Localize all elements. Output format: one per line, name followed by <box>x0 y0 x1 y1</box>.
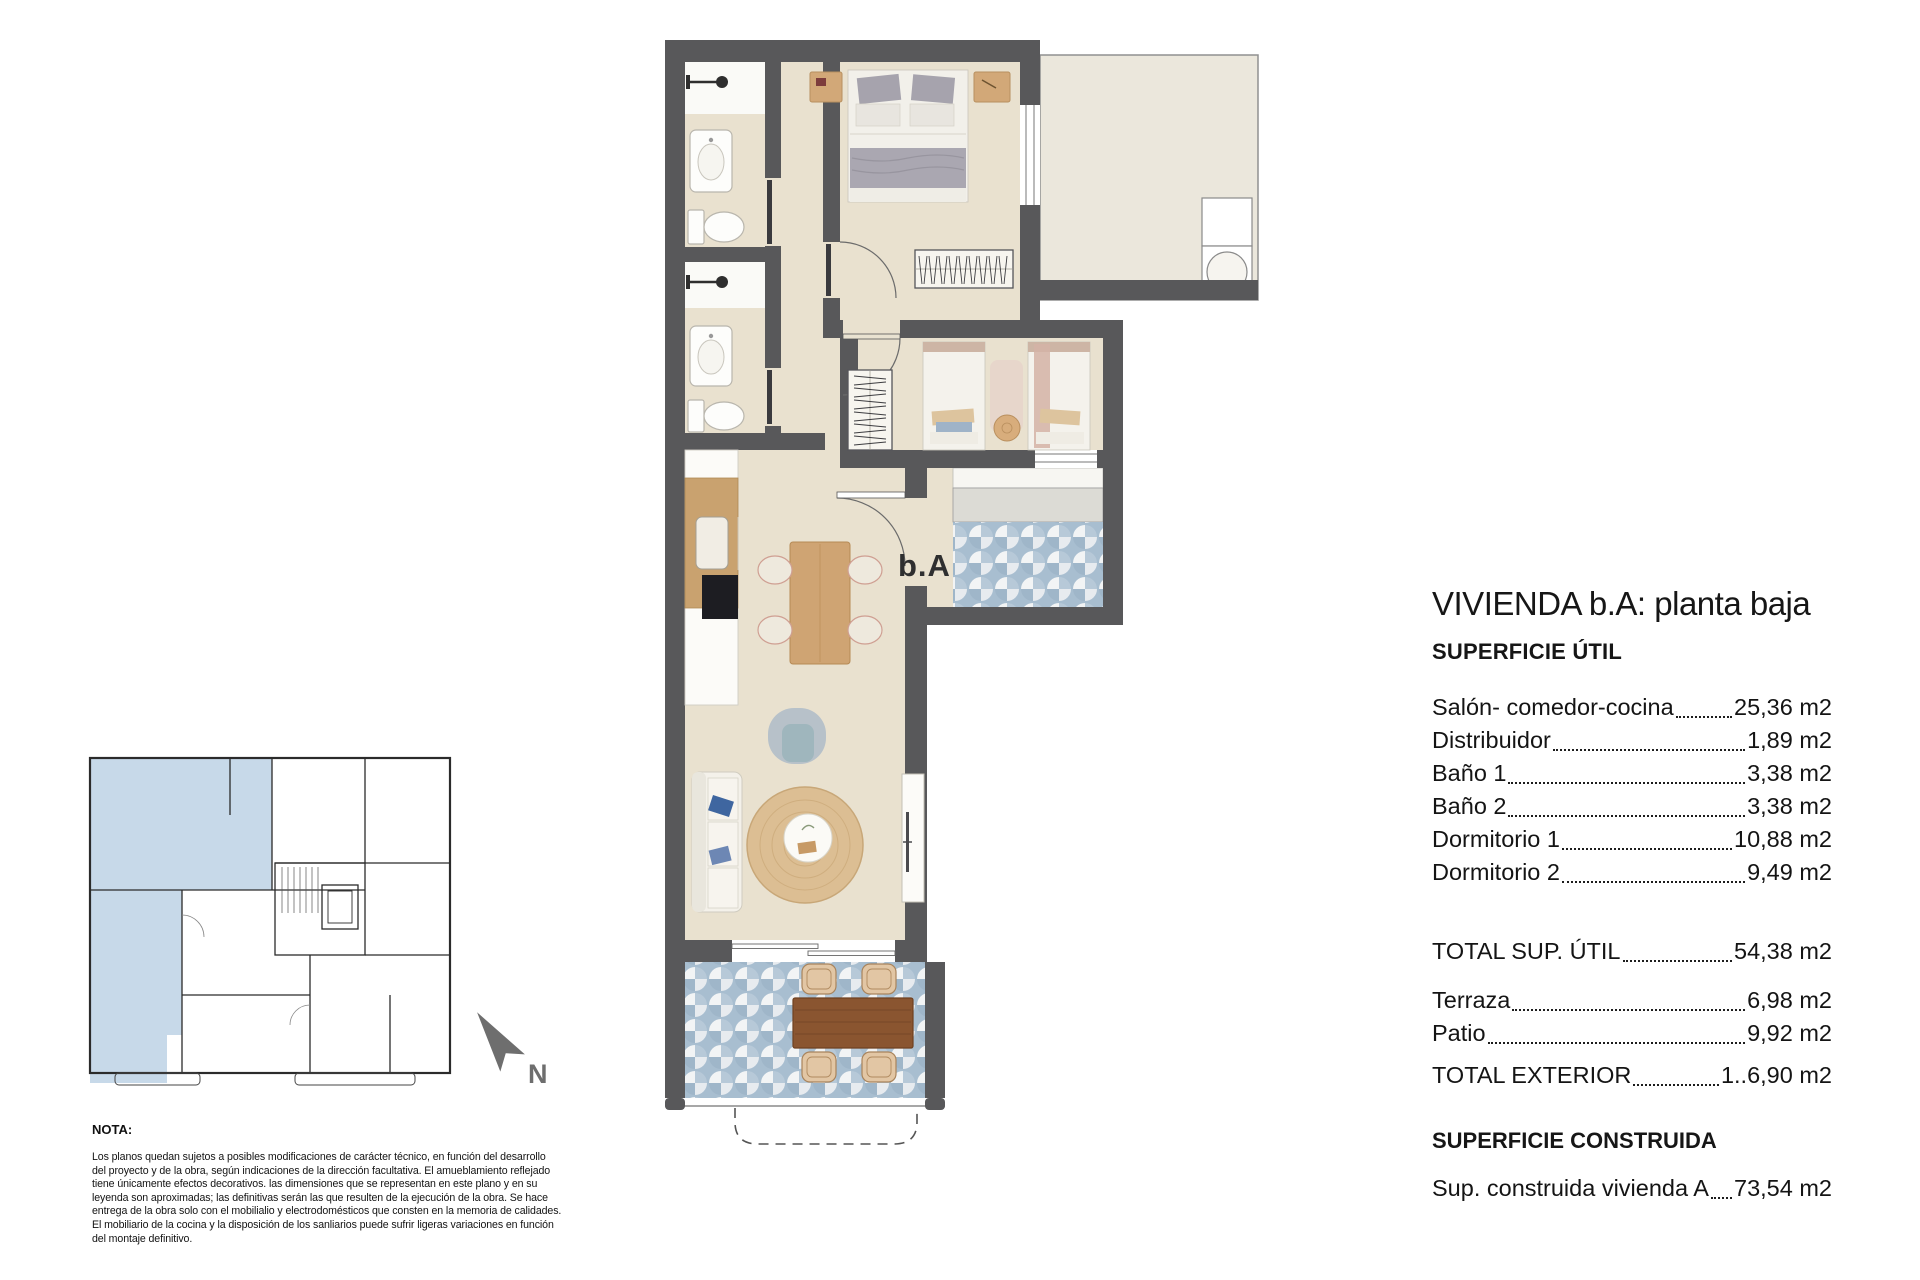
bedroom2-door-leaf <box>843 334 900 339</box>
dot-leader <box>1488 1042 1746 1044</box>
dot-leader <box>1562 848 1732 850</box>
kitchen <box>685 450 738 705</box>
dot-leader <box>1711 1197 1732 1199</box>
area-row: Terraza6,98 m2 <box>1432 984 1832 1017</box>
areas-legend: VIVIENDA b.A: planta baja SUPERFICIE ÚTI… <box>1432 585 1832 1205</box>
bath1-door-leaf <box>767 180 772 244</box>
armchair <box>768 708 826 764</box>
chair <box>848 556 882 584</box>
entry-landing <box>953 468 1103 607</box>
area-row: Baño 13,38 m2 <box>1432 757 1832 790</box>
chair <box>758 616 792 644</box>
unit-highlight <box>90 758 272 1083</box>
nota-body: Los planos quedan sujetos a posibles mod… <box>92 1151 562 1246</box>
sliding-door-terrace <box>732 940 895 962</box>
apartment-plan: b.A <box>630 30 1270 1170</box>
area-row: Baño 23,38 m2 <box>1432 790 1832 823</box>
stair-core <box>275 863 365 955</box>
built-area-row: Sup. construida vivienda A73,54 m2 <box>1432 1172 1832 1205</box>
dot-leader <box>1508 782 1745 784</box>
window-bedroom2 <box>1035 450 1097 468</box>
nightstand <box>974 72 1010 102</box>
surface-built-heading: SUPERFICIE CONSTRUIDA <box>1432 1128 1832 1154</box>
outdoor-table <box>793 998 913 1048</box>
entry-door-leaf <box>837 492 905 498</box>
awning-dashed-outline <box>735 1108 917 1144</box>
area-row: Patio9,92 m2 <box>1432 1017 1832 1050</box>
dot-leader <box>1553 749 1745 751</box>
nota-heading: NOTA: <box>92 1122 562 1137</box>
toilet-icon <box>688 400 744 432</box>
area-row: Salón- comedor-cocina25,36 m2 <box>1432 691 1832 724</box>
bedside-table <box>994 415 1020 441</box>
surface-util-heading: SUPERFICIE ÚTIL <box>1432 639 1832 665</box>
chair <box>848 616 882 644</box>
nightstand <box>810 72 842 102</box>
key-plan: N <box>70 745 630 1115</box>
entry-door-label: b.A <box>898 548 951 583</box>
area-row: Distribuidor1,89 m2 <box>1432 724 1832 757</box>
dot-leader <box>1508 815 1745 817</box>
bath2-door-leaf <box>767 370 772 424</box>
sink-icon <box>690 130 732 192</box>
page-title: VIVIENDA b.A: planta baja <box>1432 585 1832 623</box>
dot-leader <box>1512 1009 1745 1011</box>
floor-plan-sheet: b.A <box>0 0 1920 1280</box>
dot-leader <box>1676 716 1732 718</box>
nota-block: NOTA: Los planos quedan sujetos a posibl… <box>92 1122 562 1246</box>
patio <box>1040 55 1258 300</box>
wardrobe <box>848 370 892 450</box>
area-row: Dormitorio 29,49 m2 <box>1432 856 1832 889</box>
tv-unit <box>902 774 924 902</box>
total-exterior-row: TOTAL EXTERIOR1..6,90 m2 <box>1432 1059 1832 1092</box>
dot-leader <box>1633 1084 1719 1086</box>
sink-icon <box>690 326 732 386</box>
toilet-icon <box>688 210 744 244</box>
kitchen-sink-icon <box>696 517 728 569</box>
area-row: Dormitorio 110,88 m2 <box>1432 823 1832 856</box>
total-util-row: TOTAL SUP. ÚTIL54,38 m2 <box>1432 935 1832 968</box>
window-bedroom1 <box>1020 105 1040 205</box>
cooktop-icon <box>702 575 738 619</box>
bedroom1-door-leaf <box>826 244 831 296</box>
chair <box>758 556 792 584</box>
sofa <box>692 772 742 912</box>
north-arrow-icon <box>465 1004 525 1072</box>
north-label: N <box>528 1059 548 1089</box>
wardrobe <box>915 250 1013 288</box>
coffee-table <box>784 814 832 862</box>
dot-leader <box>1562 881 1745 883</box>
dot-leader <box>1623 960 1733 962</box>
